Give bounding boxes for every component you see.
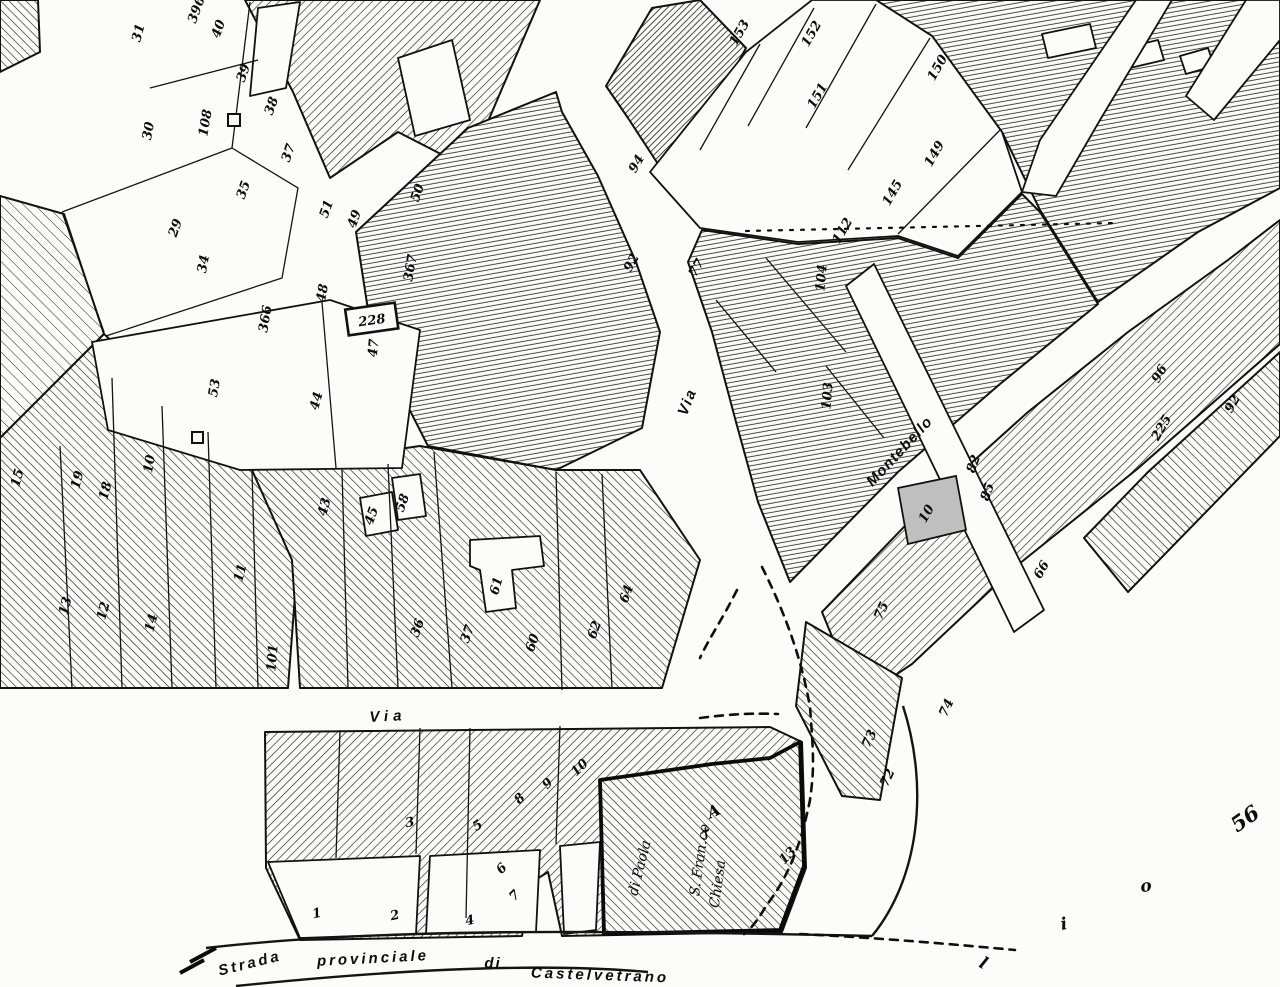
parcel-number-34: 34 — [195, 254, 213, 274]
parcel-number-10: 10 — [141, 454, 159, 474]
cadastral-map-canvas: 3963140393837353010829345149504847367366… — [0, 0, 1280, 987]
parcel — [426, 850, 540, 934]
parcel-number-103: 103 — [819, 382, 836, 410]
parcel-number-30: 30 — [140, 121, 158, 141]
street-label-via: Via — [369, 707, 407, 726]
building-symbol — [192, 432, 203, 443]
parcel-number-53: 53 — [206, 378, 224, 398]
parcel-number-104: 104 — [813, 264, 830, 292]
building-symbol — [228, 114, 240, 126]
parcel-number-101: 101 — [264, 644, 281, 672]
cadastral-map-page: 3963140393837353010829345149504847367366… — [0, 0, 1280, 987]
parcel — [560, 842, 600, 934]
parcel-number-47: 47 — [366, 338, 383, 357]
parcel-number-48: 48 — [314, 283, 332, 303]
street-label-di: di — [484, 955, 501, 972]
